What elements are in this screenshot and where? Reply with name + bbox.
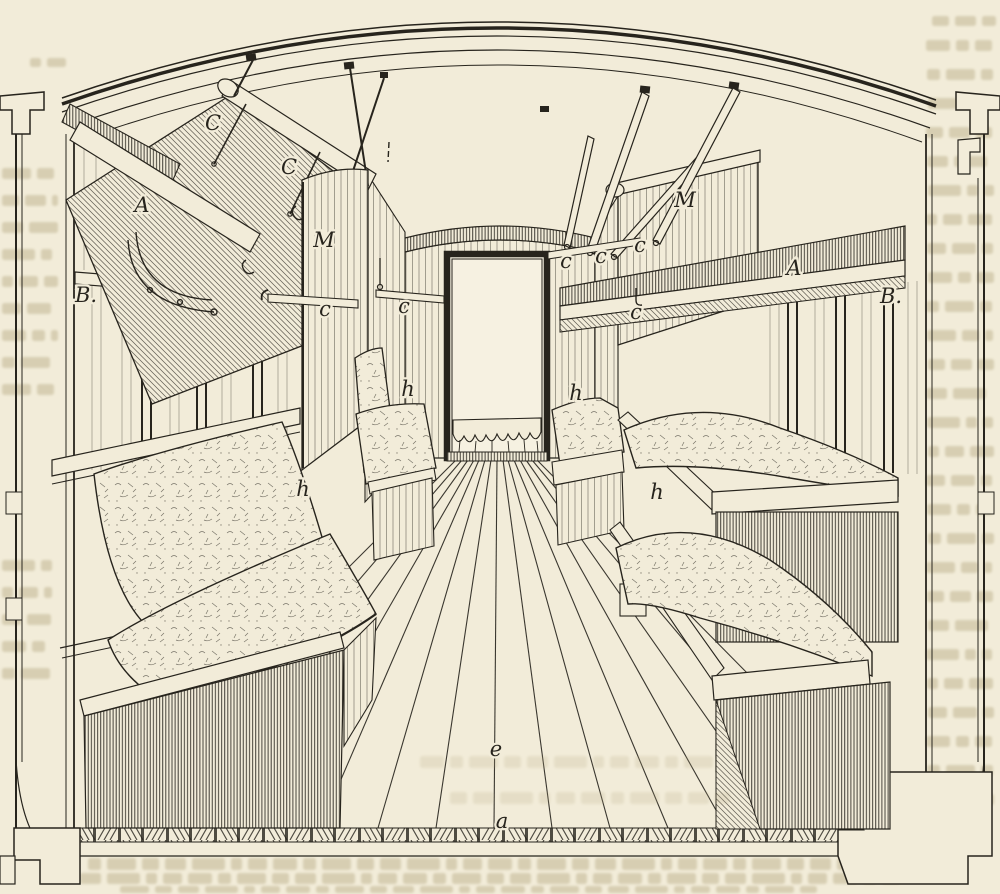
part-label-e: e: [490, 737, 502, 761]
part-label-c: c: [630, 300, 642, 324]
right-rear-bench: [552, 398, 624, 545]
part-label-C: C: [205, 111, 221, 135]
engraving-railway-car-interior: CCAMB.cchhccccMAB.hhea: [0, 0, 1000, 894]
part-label-C: C: [281, 155, 297, 179]
part-label-a: a: [496, 809, 509, 833]
part-label-c: c: [398, 294, 410, 318]
part-label-h: h: [650, 480, 664, 504]
part-label-c: c: [560, 249, 572, 273]
part-label-M: M: [312, 228, 335, 252]
part-label-c: c: [595, 244, 607, 268]
part-label-B: B.: [879, 284, 902, 308]
part-label-h: h: [401, 377, 415, 401]
part-label-h: h: [569, 381, 583, 405]
floor-sill: [62, 828, 838, 842]
book-page: CCAMB.cchhccccMAB.hhea: [0, 0, 1000, 894]
part-label-c: c: [319, 297, 331, 321]
part-label-M: M: [673, 188, 696, 212]
bench-base: [372, 478, 434, 560]
door-threshold: [447, 452, 547, 461]
part-label-A: A: [784, 256, 801, 280]
part-label-h: h: [296, 477, 310, 501]
part-label-B: B.: [74, 283, 97, 307]
part-label-c: c: [634, 233, 646, 257]
part-label-A: A: [132, 193, 149, 217]
